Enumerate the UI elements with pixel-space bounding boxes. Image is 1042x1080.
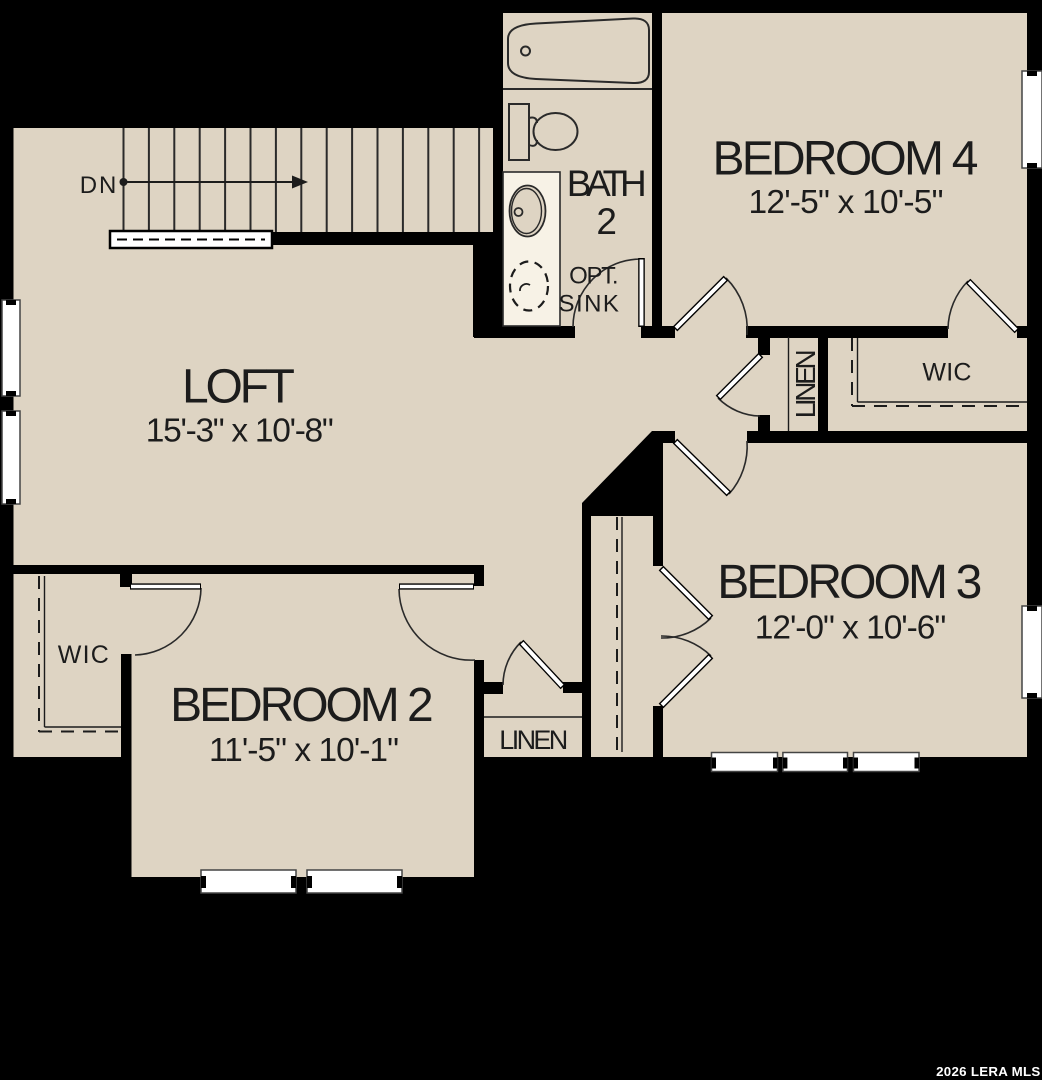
svg-text:BEDROOM 3: BEDROOM 3 [717,556,982,609]
svg-text:15'-3" x 10'-8": 15'-3" x 10'-8" [146,412,334,449]
svg-text:BEDROOM 4: BEDROOM 4 [713,132,979,185]
svg-text:11'-5" x 10'-1": 11'-5" x 10'-1" [209,732,399,769]
svg-text:LINEN: LINEN [790,349,821,418]
svg-text:WIC: WIC [58,641,109,669]
svg-text:DN: DN [80,172,117,199]
svg-text:BATH: BATH [567,163,647,204]
svg-text:12'-5" x 10'-5": 12'-5" x 10'-5" [749,184,944,221]
svg-text:12'-0" x 10'-6": 12'-0" x 10'-6" [755,609,947,646]
svg-text:LINEN: LINEN [499,725,568,755]
svg-text:OPT.: OPT. [569,263,618,290]
svg-text:LOFT: LOFT [182,361,295,414]
svg-text:SINK: SINK [558,290,619,317]
svg-text:WIC: WIC [922,359,971,387]
svg-text:2026 LERA MLS: 2026 LERA MLS [936,1064,1040,1079]
svg-text:2: 2 [596,201,617,242]
svg-text:BEDROOM 2: BEDROOM 2 [170,679,434,732]
